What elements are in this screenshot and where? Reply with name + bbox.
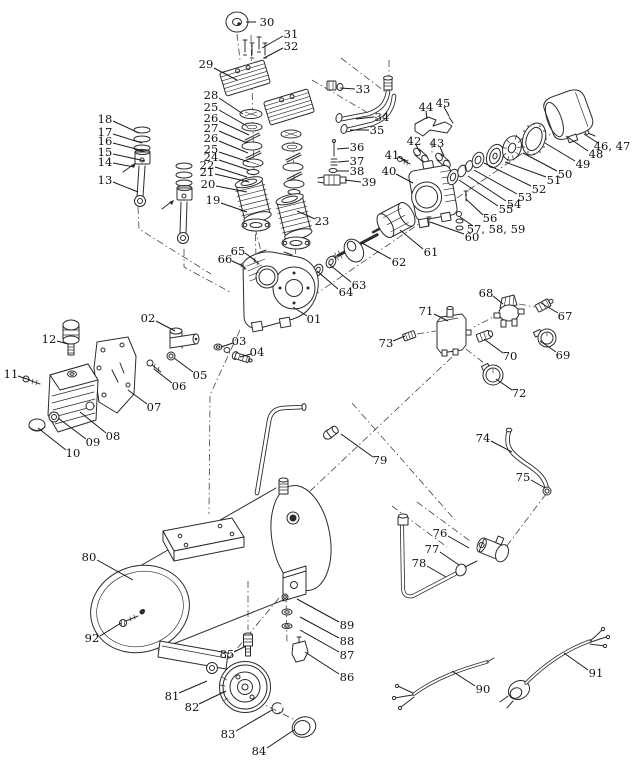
leader-line-39 — [345, 180, 361, 182]
part-number-89: 89 — [340, 618, 355, 632]
washer-81 — [207, 663, 218, 674]
fitting-67 — [535, 297, 555, 313]
circlip-83 — [272, 703, 283, 714]
leader-line-90 — [452, 671, 475, 686]
part-number-10: 10 — [66, 446, 81, 460]
hub-cap-84 — [289, 713, 318, 740]
leader-line-14 — [113, 163, 134, 167]
part-number-79: 79 — [373, 453, 388, 467]
part-number-32: 32 — [284, 39, 299, 53]
part-number-09: 09 — [86, 435, 101, 449]
part-number-66: 66 — [218, 252, 233, 266]
part-number-69: 69 — [556, 348, 571, 362]
cylinder-2 — [274, 191, 314, 242]
part-number-86: 86 — [340, 670, 355, 684]
part-number-77: 77 — [425, 542, 440, 556]
crankshaft-62 — [328, 227, 384, 272]
leader-line-55 — [459, 180, 498, 206]
part-number-63: 63 — [352, 278, 367, 292]
part-number-30: 30 — [260, 15, 275, 29]
part-number-01: 01 — [307, 312, 322, 326]
pump-mounting-plate — [163, 518, 244, 561]
part-number-74: 74 — [476, 431, 491, 445]
part-number-39: 39 — [362, 175, 377, 189]
part-number-70: 70 — [503, 349, 518, 363]
intake-filter-12 — [63, 320, 79, 355]
leader-line-18 — [113, 121, 139, 133]
part-number-60: 60 — [465, 230, 480, 244]
part-number-90: 90 — [476, 682, 491, 696]
part-number-34: 34 — [375, 110, 390, 124]
diagram-canvas: 3031322933343528252627262524222120192318… — [0, 0, 640, 768]
part-number-84: 84 — [252, 744, 267, 758]
leader-line-52 — [484, 163, 531, 186]
leader-line-56 — [466, 199, 483, 215]
leader-line-73 — [393, 336, 405, 341]
discharge-tube-fitting — [384, 76, 393, 90]
part-number-03: 03 — [232, 334, 247, 348]
part-number-06: 06 — [172, 379, 187, 393]
part-number-44: 44 — [419, 100, 434, 114]
part-number-83: 83 — [221, 727, 236, 741]
outlet-fitting-39 — [318, 175, 346, 185]
part-number-88: 88 — [340, 634, 355, 648]
part-number-65: 65 — [231, 244, 246, 258]
part-number-42: 42 — [407, 134, 422, 148]
part-number-33: 33 — [356, 82, 371, 96]
part-number-91: 91 — [589, 666, 604, 680]
part-number-11: 11 — [4, 367, 19, 381]
part-number-61: 61 — [424, 245, 439, 259]
stator-lamination-ring-49 — [518, 120, 550, 159]
part-number-49: 49 — [576, 157, 591, 171]
tube-nut-75 — [543, 487, 551, 495]
part-number-18: 18 — [98, 112, 113, 126]
part-number-62: 62 — [392, 255, 407, 269]
leader-line-78 — [427, 566, 446, 577]
part-number-29: 29 — [199, 57, 214, 71]
part-number-13: 13 — [98, 173, 113, 187]
part-number-72: 72 — [512, 386, 527, 400]
part-number-41: 41 — [385, 148, 400, 162]
part-number-51: 51 — [547, 173, 562, 187]
leader-line-77 — [440, 552, 459, 565]
check-valve-small-parts — [329, 140, 337, 173]
part-number-71: 71 — [419, 304, 434, 318]
leader-line-32 — [264, 48, 283, 58]
screw-06 — [147, 360, 161, 372]
part-number-68: 68 — [479, 286, 494, 300]
part-number-55: 55 — [499, 202, 514, 216]
leader-line-31 — [262, 36, 283, 48]
leader-line-79 — [341, 434, 373, 457]
part-number-43: 43 — [430, 136, 445, 150]
part-number-05: 05 — [193, 368, 208, 382]
leader-line-66 — [232, 261, 243, 266]
washer-05 — [167, 352, 175, 360]
leader-line-54 — [468, 176, 506, 201]
part-number-73: 73 — [379, 336, 394, 350]
part-number-07: 07 — [147, 400, 162, 414]
front-leg-strap — [158, 641, 228, 669]
leader-line-53 — [474, 170, 517, 194]
part-number-78: 78 — [412, 556, 427, 570]
leader-line-86 — [305, 652, 339, 674]
leader-line-83 — [236, 710, 272, 731]
piston-assembly-1 — [123, 127, 150, 207]
leader-line-51 — [505, 162, 546, 177]
air-filter — [226, 12, 248, 32]
leader-line-84 — [267, 730, 294, 748]
leader-line-06 — [154, 369, 172, 383]
washer-09 — [49, 412, 59, 422]
part-number-92: 92 — [85, 631, 100, 645]
rubber-foot-86 — [292, 637, 308, 662]
leader-line-05 — [174, 358, 193, 372]
check-valve-76 — [475, 530, 513, 564]
part-number-36: 36 — [350, 140, 365, 154]
part-number-80: 80 — [82, 550, 97, 564]
leader-line-21 — [215, 174, 249, 182]
leader-line-37 — [338, 161, 349, 162]
part-number-23: 23 — [315, 214, 330, 228]
leader-line-49 — [545, 143, 575, 161]
elbow-fitting-33 — [327, 81, 343, 91]
part-number-85: 85 — [220, 647, 235, 661]
leader-line-25 — [219, 152, 249, 162]
bearing-washer-chain — [446, 151, 486, 187]
part-number-12: 12 — [42, 332, 57, 346]
part-number-64: 64 — [339, 285, 354, 299]
part-number-87: 87 — [340, 648, 355, 662]
part-number-75: 75 — [516, 470, 531, 484]
leader-line-50 — [523, 153, 557, 171]
part-number-35: 35 — [370, 123, 385, 137]
cylinder-2-flange-gasket — [282, 237, 310, 249]
cylinder-head-2 — [263, 89, 314, 125]
mounting-plate-07 — [94, 337, 136, 413]
leader-line-88 — [300, 617, 339, 638]
plug-79 — [322, 425, 340, 442]
part-number-14: 14 — [98, 155, 113, 169]
cylinder-1-flange-gasket — [242, 219, 270, 231]
leader-line-02 — [156, 321, 175, 331]
leader-line-36 — [337, 148, 349, 149]
wheel-82 — [220, 662, 271, 713]
part-number-08: 08 — [106, 429, 121, 443]
exploded-parts-diagram: 3031322933343528252627262524222120192318… — [0, 0, 640, 768]
leader-line-13 — [113, 182, 138, 192]
valve-plate-stack-2 — [281, 130, 304, 195]
leader-line-70 — [484, 339, 503, 353]
part-number-67: 67 — [558, 309, 573, 323]
part-number-81: 81 — [165, 689, 180, 703]
leader-line-61 — [400, 230, 423, 249]
leader-line-81 — [179, 681, 207, 693]
cylinder-head-1 — [219, 60, 270, 96]
leader-line-91 — [564, 653, 588, 670]
washer-nut-stack-57-59 — [456, 212, 463, 231]
part-number-45: 45 — [436, 96, 451, 110]
safety-valve-85 — [244, 633, 253, 656]
part-number-20: 20 — [201, 177, 216, 191]
piston-assembly-2 — [162, 163, 192, 244]
part-number-48: 48 — [589, 147, 604, 161]
part-number-02: 02 — [141, 311, 156, 325]
pressure-switch-71 — [437, 307, 471, 357]
leader-line-27 — [219, 131, 247, 143]
part-number-52: 52 — [532, 182, 547, 196]
part-number-04: 04 — [250, 345, 265, 359]
leader-line-72 — [496, 379, 512, 390]
bolt-11 — [23, 376, 40, 385]
cap-10 — [29, 419, 45, 431]
leader-line-63 — [330, 265, 351, 282]
part-number-19: 19 — [206, 193, 221, 207]
leader-line-85 — [234, 646, 246, 652]
part-number-76: 76 — [433, 526, 448, 540]
part-number-40: 40 — [382, 164, 397, 178]
cylinder-1 — [233, 174, 273, 225]
part-number-82: 82 — [185, 700, 200, 714]
